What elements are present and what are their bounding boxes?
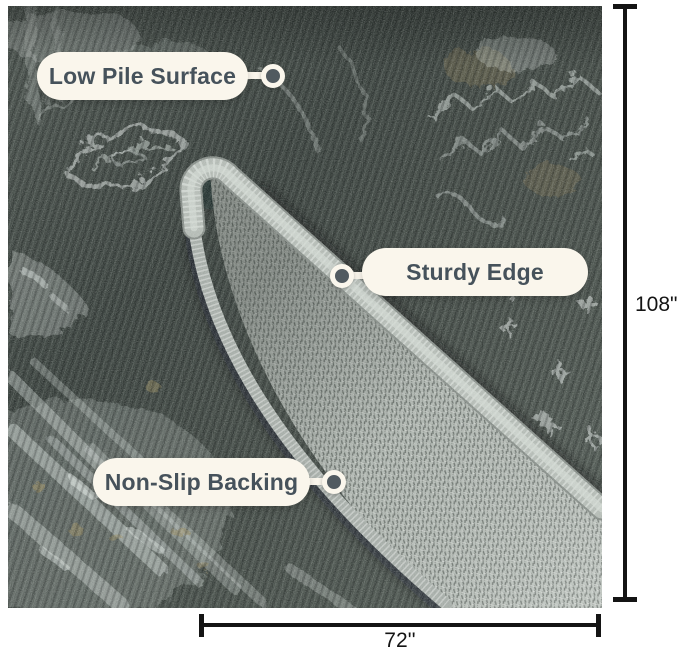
callout-low-pile-surface-label: Low Pile Surface [49,63,236,90]
callout-non-slip-dot-icon [322,470,346,494]
height-dimension-top-cap [613,4,637,9]
width-dimension-line [201,623,599,627]
callout-low-pile-surface: Low Pile Surface [37,52,248,100]
width-dimension-left-cap [199,614,204,637]
callout-low-pile-dot-icon [261,64,285,88]
callout-sturdy-edge-dot-icon [330,264,354,288]
callout-non-slip-backing-label: Non-Slip Backing [105,469,299,496]
height-dimension-label: 108" [635,293,678,317]
height-dimension-line [623,5,627,601]
height-dimension-bottom-cap [613,597,637,602]
width-dimension-label: 72'' [330,629,470,652]
width-dimension-right-cap [596,614,601,637]
callout-non-slip-backing: Non-Slip Backing [93,458,310,506]
callout-sturdy-edge: Sturdy Edge [362,248,588,296]
product-image: Low Pile Surface Sturdy Edge Non-Slip Ba… [0,0,679,652]
callout-sturdy-edge-label: Sturdy Edge [406,259,544,286]
